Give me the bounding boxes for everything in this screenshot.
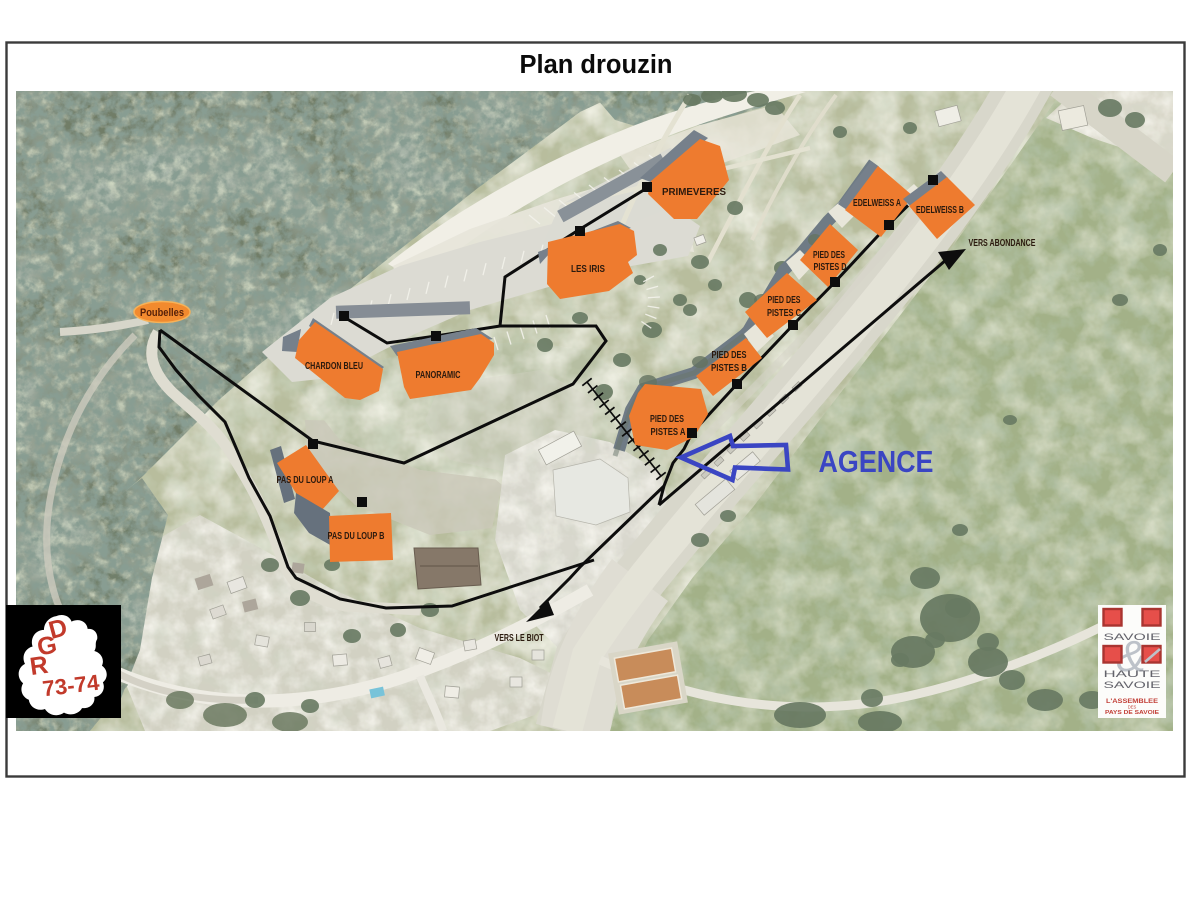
svg-text:PISTES C: PISTES C (767, 307, 801, 319)
svg-text:HAUTE: HAUTE (1104, 669, 1161, 679)
svg-text:SAVOIE: SAVOIE (1104, 680, 1161, 690)
svg-text:AGENCE: AGENCE (819, 444, 934, 479)
svg-text:VERS ABONDANCE: VERS ABONDANCE (969, 238, 1036, 249)
svg-text:PIED DES: PIED DES (768, 294, 801, 306)
svg-text:PISTES B: PISTES B (711, 362, 747, 374)
svg-text:CHARDON BLEU: CHARDON BLEU (305, 360, 363, 372)
svg-text:PIED DES: PIED DES (813, 249, 845, 261)
svg-text:PANORAMIC: PANORAMIC (416, 369, 461, 381)
svg-text:PIED DES: PIED DES (650, 413, 684, 425)
svg-text:EDELWEISS A: EDELWEISS A (853, 197, 901, 209)
svg-text:DES: DES (1128, 705, 1137, 710)
svg-text:PIED DES: PIED DES (712, 349, 747, 361)
svg-text:PAS DU LOUP B: PAS DU LOUP B (328, 530, 385, 542)
svg-text:PRIMEVERES: PRIMEVERES (662, 186, 726, 198)
svg-text:PAYS DE SAVOIE: PAYS DE SAVOIE (1105, 710, 1159, 716)
svg-text:Plan drouzin: Plan drouzin (520, 51, 673, 79)
svg-text:PAS DU LOUP A: PAS DU LOUP A (277, 474, 334, 486)
svg-text:PISTES A: PISTES A (651, 426, 686, 438)
svg-text:VERS LE BIOT: VERS LE BIOT (495, 633, 544, 644)
svg-text:EDELWEISS B: EDELWEISS B (916, 204, 964, 216)
svg-text:Poubelles: Poubelles (140, 307, 184, 319)
svg-text:PISTES D: PISTES D (814, 261, 847, 273)
svg-text:LES IRIS: LES IRIS (571, 263, 605, 275)
